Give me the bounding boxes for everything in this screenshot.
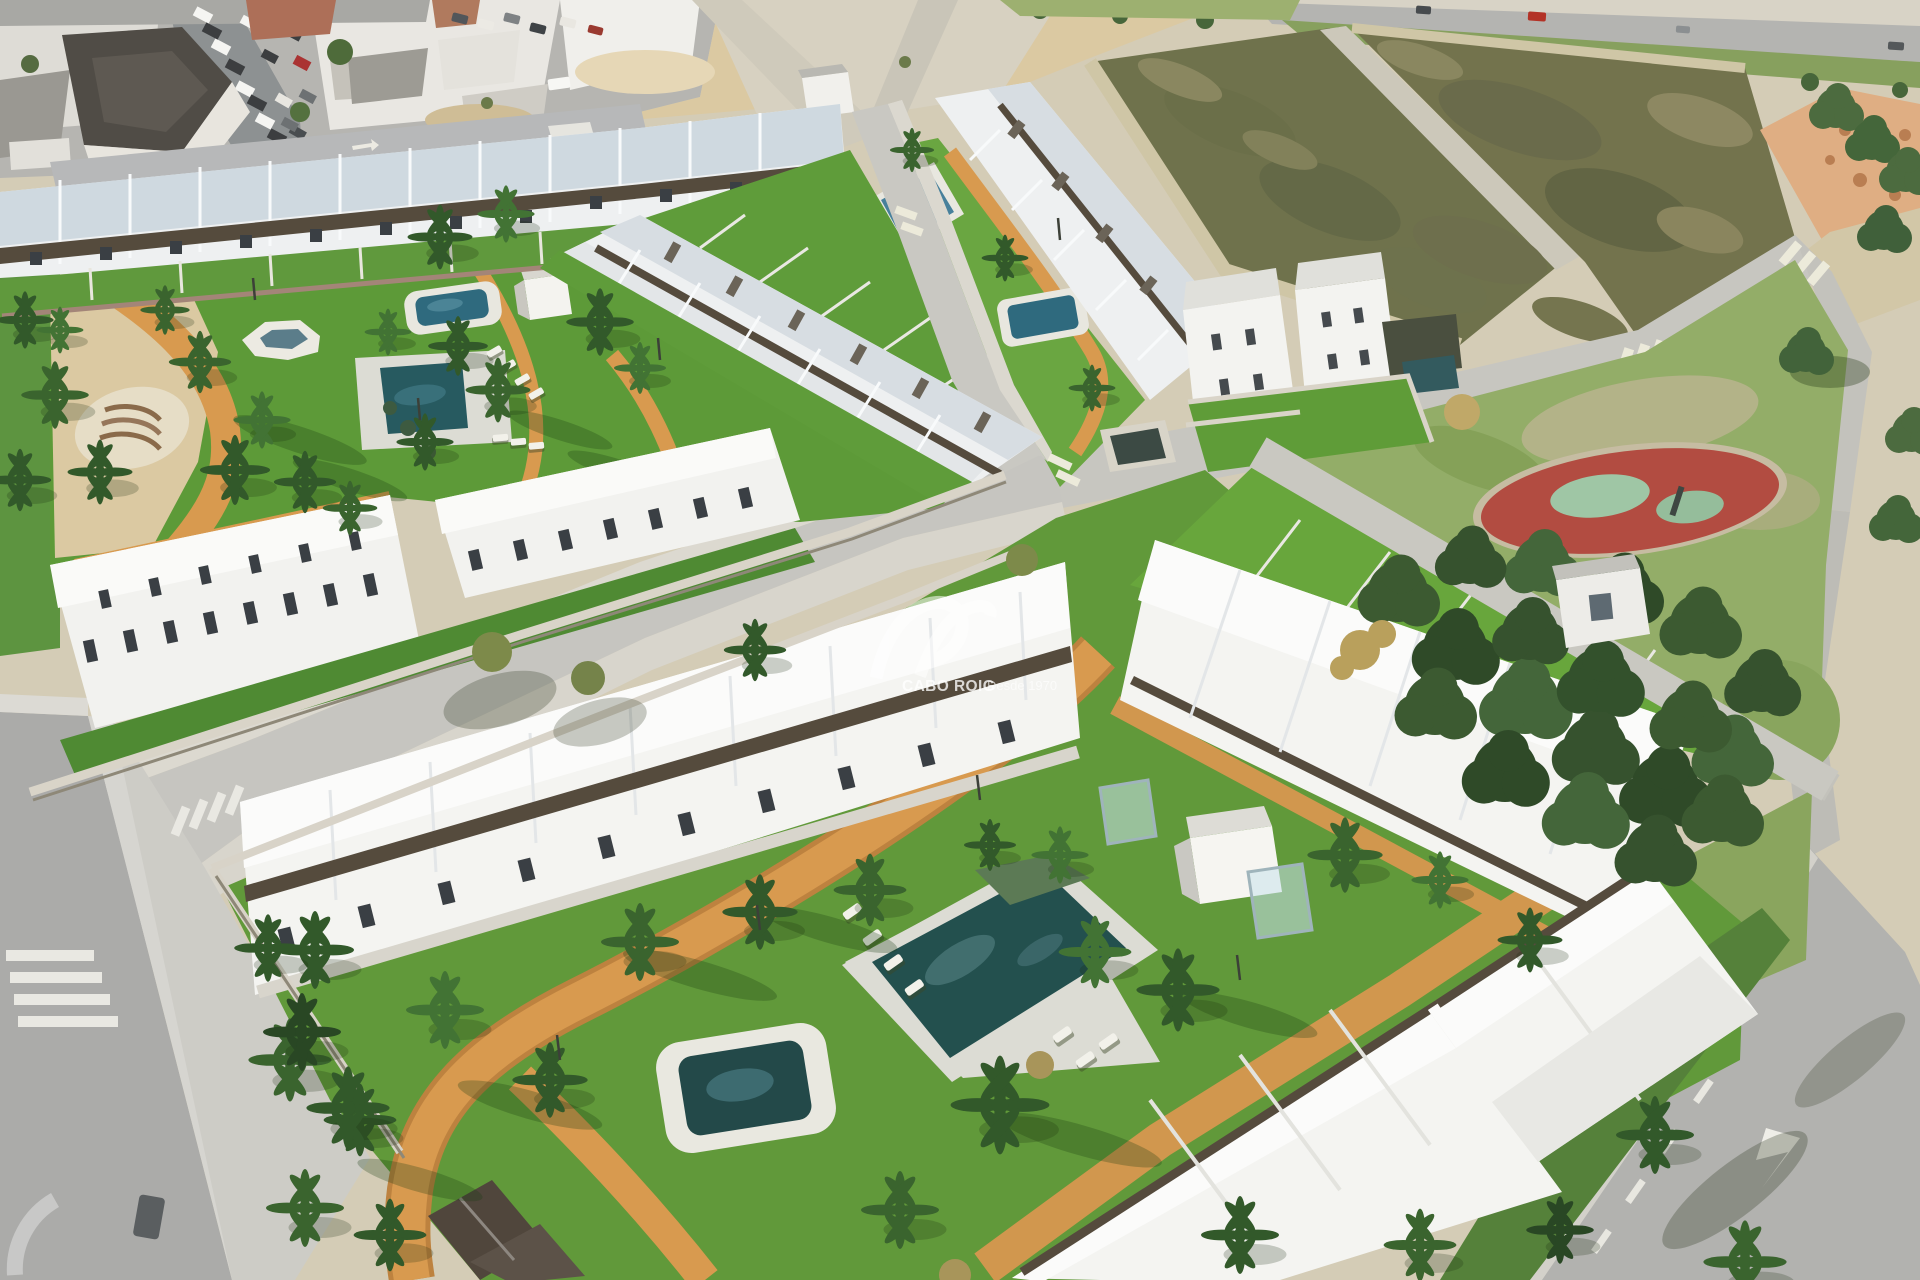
svg-text:Desde 1970: Desde 1970 — [987, 678, 1057, 693]
svg-text:CABO ROIG: CABO ROIG — [902, 678, 995, 695]
